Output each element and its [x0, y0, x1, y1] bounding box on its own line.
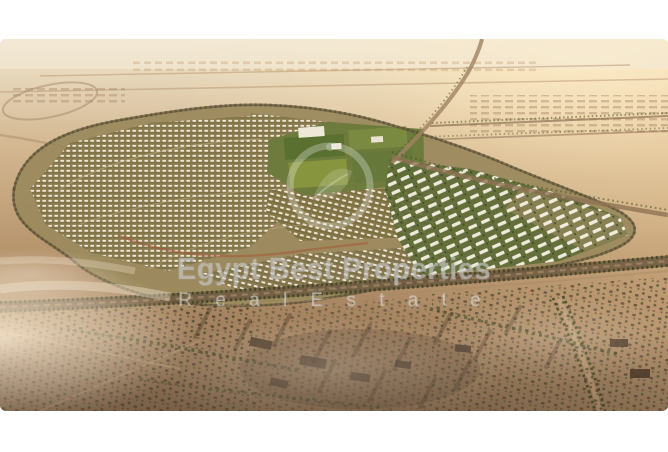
listing-photo-frame: Egypt Best Properties R e a l E s t a t …	[0, 0, 668, 452]
aerial-scene-art	[0, 39, 668, 411]
aerial-masterplan-photo: Egypt Best Properties R e a l E s t a t …	[0, 39, 668, 411]
